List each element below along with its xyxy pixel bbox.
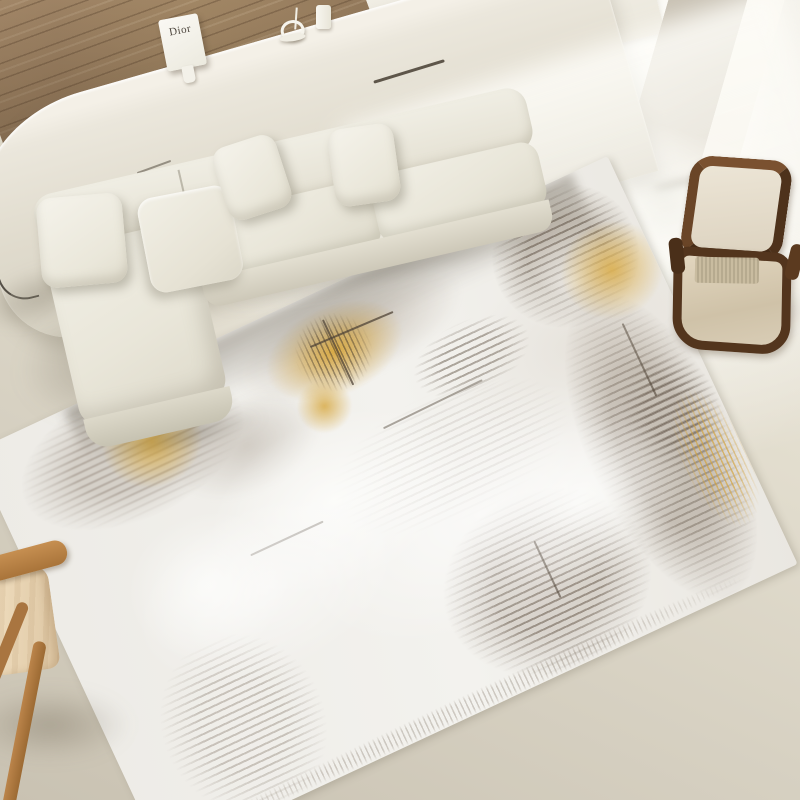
- rug-bottomleft-stripe-patch: [130, 605, 358, 800]
- dior-card: Dior: [158, 13, 207, 72]
- rug-white-wash: [104, 485, 315, 686]
- walnut-floor-chair: [665, 152, 800, 361]
- lumbar-pillow-right: [326, 122, 402, 208]
- diffuser-stub: [181, 65, 196, 84]
- candle: [316, 5, 331, 29]
- incense-holder: [274, 6, 313, 46]
- rug-scratch-line: [250, 521, 323, 557]
- dior-brand-label: Dior: [168, 23, 192, 39]
- lumbar-pillow-left: [35, 192, 129, 289]
- chair-woven-strip: [695, 257, 759, 284]
- rug-scratch-line: [533, 541, 561, 598]
- living-room-photo: Dior: [0, 0, 800, 800]
